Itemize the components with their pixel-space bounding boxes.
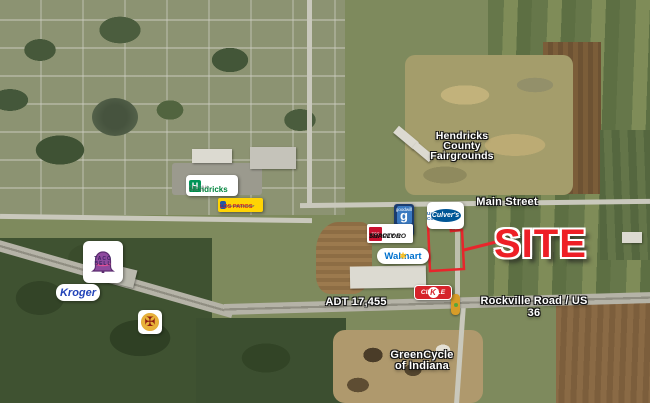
label-main-street: Main Street: [476, 196, 538, 208]
fairgrounds-area: [405, 55, 573, 195]
tractor-supply-logo: TSC TRACTOR SUPPLY CO: [367, 224, 413, 243]
hendricks-regional-health-logo: H Hendricks REGIONAL HEALTH: [186, 175, 238, 196]
label-hendricks-county-fairgrounds: Hendricks County Fairgrounds: [430, 131, 493, 161]
los-patios-logo: LOS PATIOS MEXICAN RESTAURANT: [218, 198, 263, 212]
taco-bell-logo: TACO BELL: [83, 241, 123, 283]
circle-k-disc-icon: K: [428, 287, 439, 298]
walmart-logo: Walmart ✱: [377, 248, 429, 264]
kroger-logo: Kroger: [56, 284, 100, 301]
strip-center-building: [192, 149, 232, 163]
label-rockville-road-us36: Rockville Road / US 36: [476, 295, 592, 319]
fire-department-emblem-icon: ✠: [141, 313, 159, 331]
culvers-oval-icon: Culver's: [431, 209, 461, 222]
walmart-spark-icon: ✱: [399, 252, 407, 261]
pond: [92, 98, 138, 136]
main-street-road-west: [0, 214, 312, 223]
label-site-callout: SITE: [494, 225, 587, 263]
forest-south: [196, 318, 346, 403]
kroger-wordmark: Kroger: [60, 287, 96, 299]
traffic-light-icon: [451, 294, 460, 315]
east-building: [622, 232, 642, 243]
culvers-under-construction-logo: Under Construction Culver's: [427, 202, 464, 229]
label-greencycle-of-indiana: GreenCycle of Indiana: [390, 350, 453, 372]
aerial-site-map: Hendricks County Fairgrounds Main Street…: [0, 0, 650, 403]
signal-green-dot: [454, 303, 458, 307]
circle-k-logo: CIRCLE K: [414, 285, 452, 300]
label-adt-traffic-count: ADT 17,455: [325, 296, 386, 308]
fire-department-logo: ✠: [138, 310, 162, 334]
north-south-road: [307, 0, 312, 206]
big-box-store-building: [250, 147, 296, 169]
